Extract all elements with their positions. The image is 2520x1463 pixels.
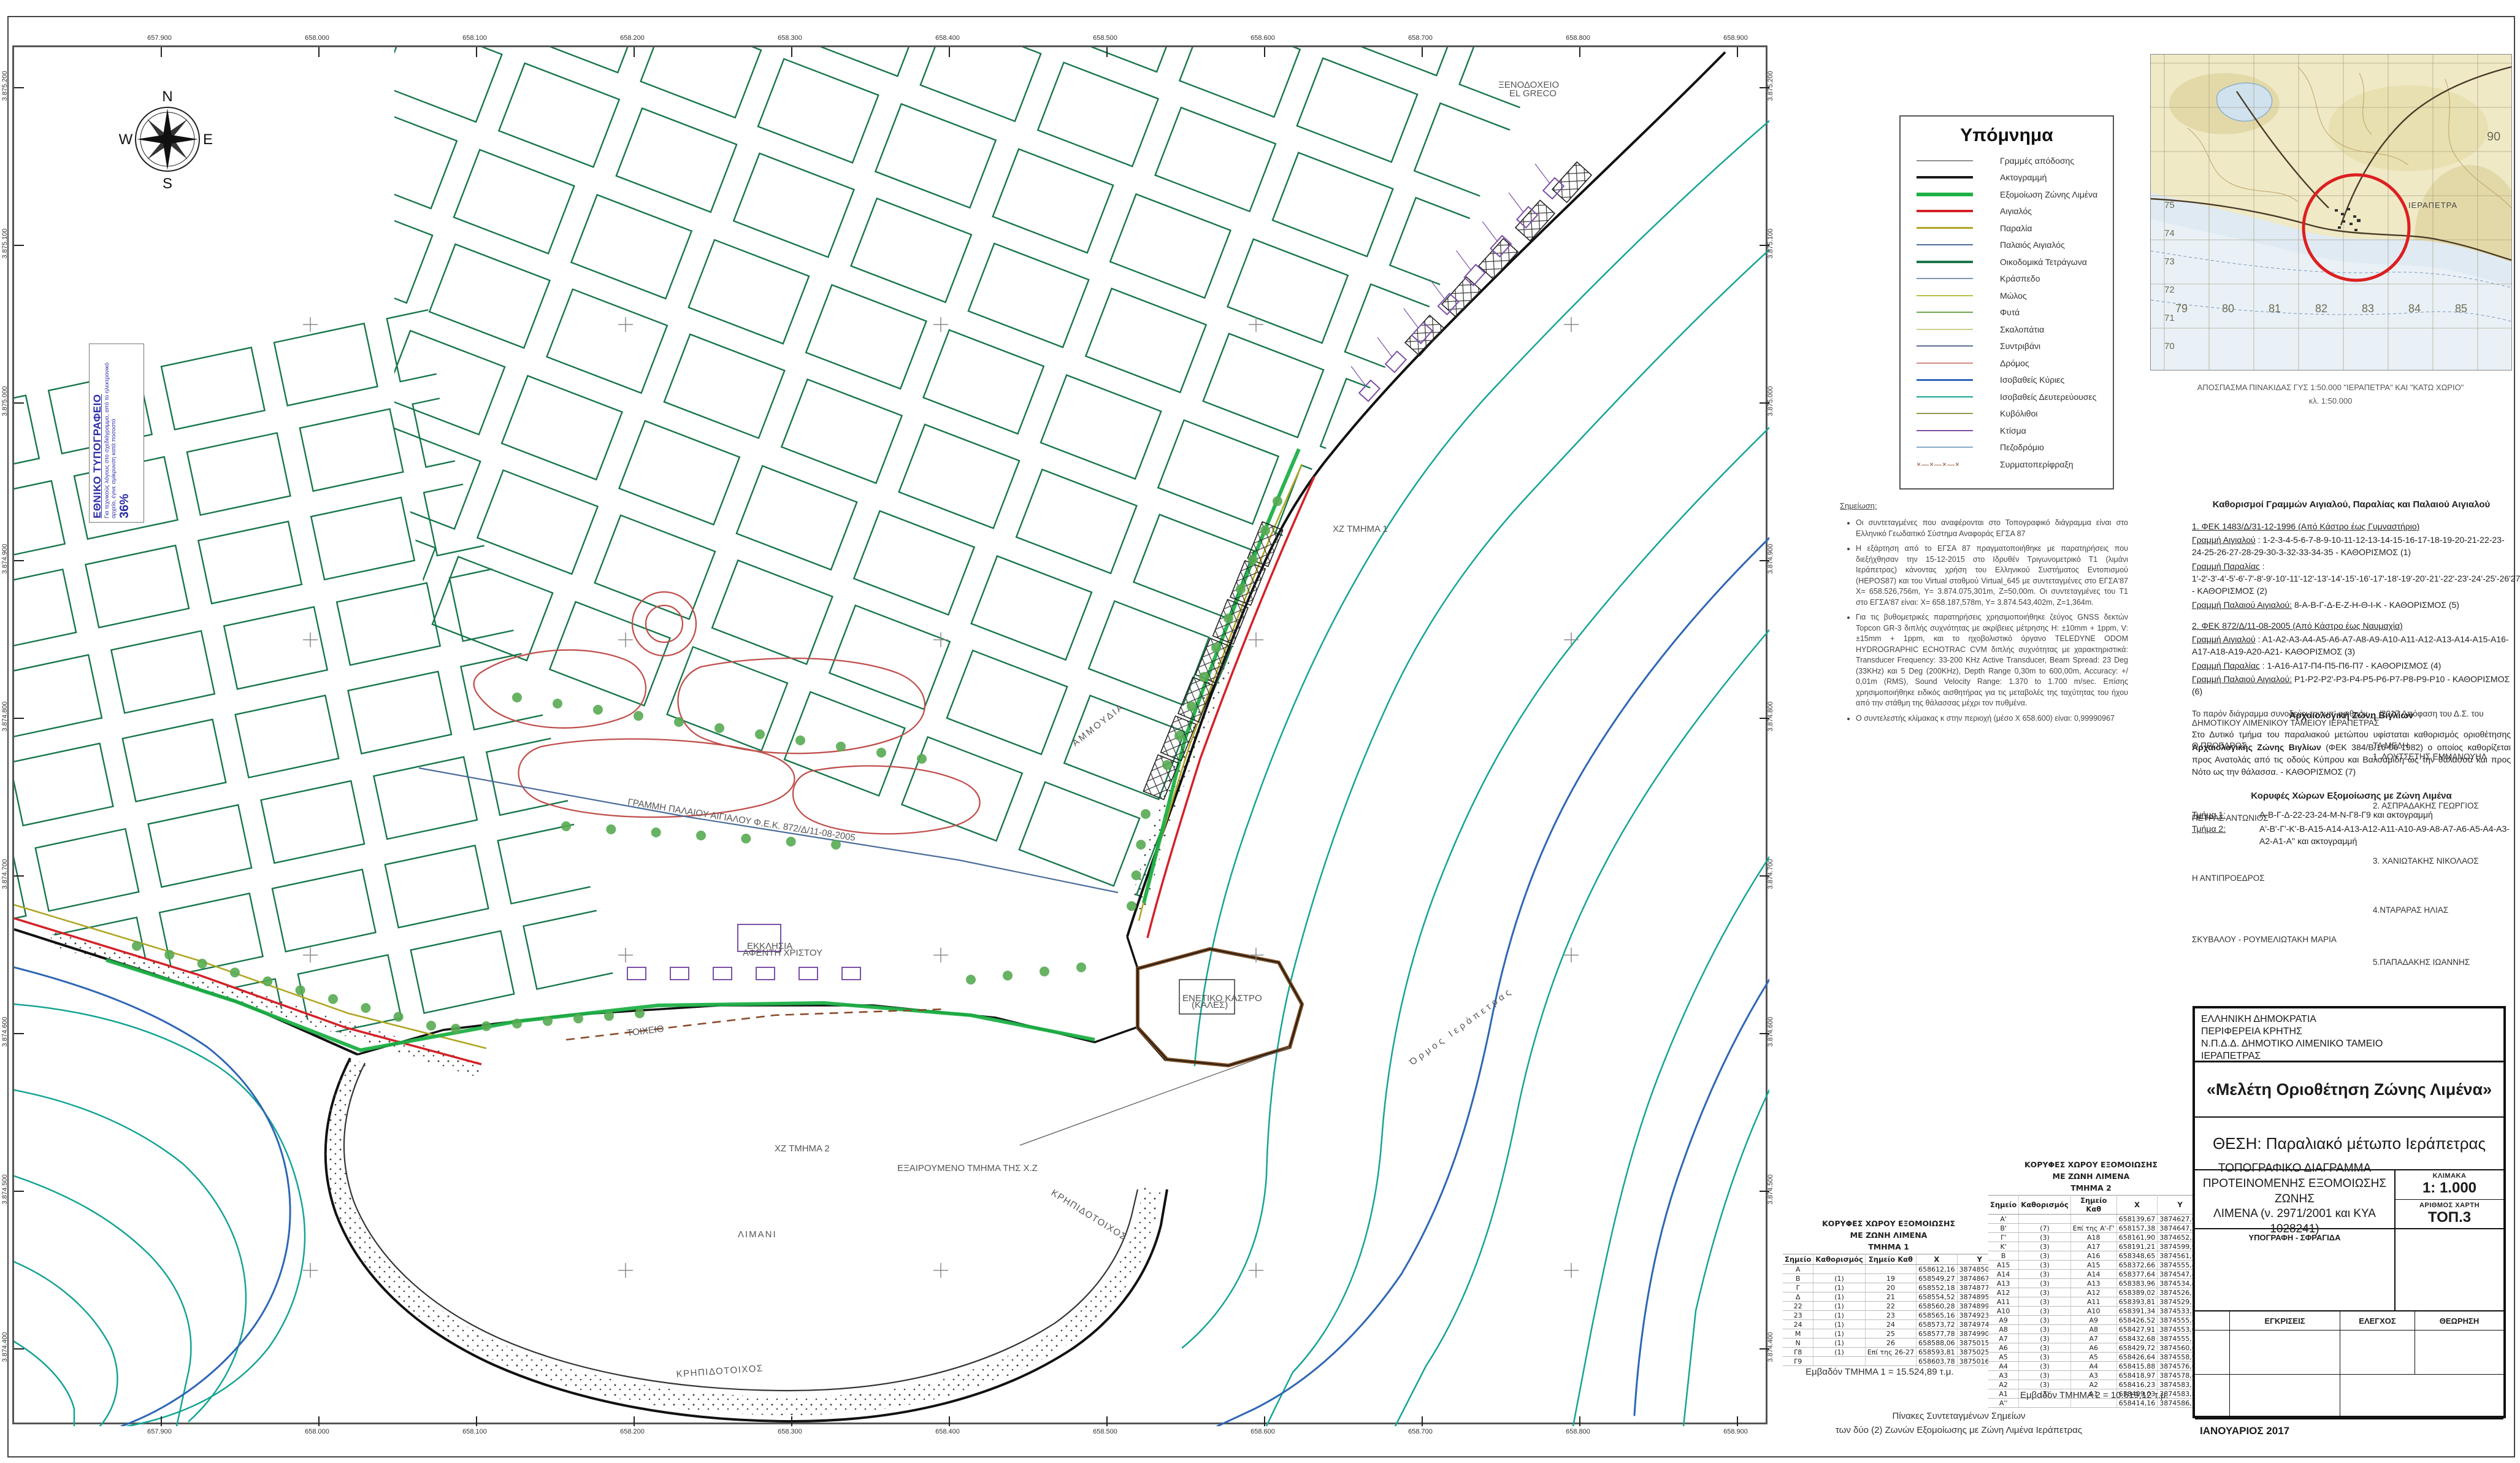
coordinate-tick-label: 3.874.900	[1, 537, 9, 580]
legend-item-label: Συρματοπερίφραξη	[2000, 459, 2074, 469]
title-block-agency: ΕΛΛΗΝΙΚΗ ΔΗΜΟΚΡΑΤΙΑ ΠΕΡΙΦΕΡΕΙΑ ΚΡΗΤΗΣ Ν.…	[2195, 1008, 2503, 1062]
line-swatch-icon	[1917, 413, 1973, 414]
label-kastro-line2: (ΚΑΛΕΣ)	[1192, 1000, 1228, 1010]
label-hotel-line2: EL GRECO	[1509, 88, 1557, 99]
legend-item-label: Κτίσμα	[2000, 426, 2026, 436]
line-swatch-icon	[1917, 363, 1973, 364]
inset-right-number: 90	[2487, 130, 2500, 144]
check-header: ΕΛΕΓΧΟΣ	[2340, 1311, 2415, 1330]
coastline	[14, 52, 1725, 1061]
title-block-map-number: ΑΡΙΘΜΟΣ ΧΑΡΤΗΤΟΠ.3	[2396, 1200, 2503, 1229]
legend-item: Πεζοδρόμιο	[1901, 439, 2113, 456]
line-swatch-icon	[1917, 396, 1973, 397]
coordinate-tick-label: 658.900	[1714, 1428, 1757, 1435]
fek-s2-line2: Γραμμή Παραλίας : 1-Α16-Α17-Π4-Π5-Π6-Π7 …	[2192, 659, 2511, 672]
title-block-drawing-title: ΤΟΠΟΓΡΑΦΙΚΟ ΔΙΑΓΡΑΜΜΑΠΡΟΤΕΙΝΟΜΕΝΗΣ ΕΞΟΜΟ…	[2195, 1170, 2396, 1228]
svg-text:N: N	[162, 88, 172, 105]
member-name: 5.ΠΑΠΑΔΑΚΗΣ ΙΩΑΝΝΗΣ	[2373, 958, 2470, 967]
table-row: 23(1)23658565,163874923,81	[1783, 1311, 2002, 1320]
coordinate-tick-label: 658.900	[1714, 34, 1757, 42]
coordinate-tick-label: 658.000	[296, 1428, 339, 1435]
legend-item: Γραμμές απόδοσης	[1901, 152, 2113, 169]
legend-title: Υπόμνημα	[1901, 125, 2113, 146]
note-bullet: Για τις βυθομετρικές παρατηρήσεις χρησιμ…	[1856, 612, 2128, 709]
svg-text:82: 82	[2315, 302, 2327, 315]
legend-item: Συντριβάνι	[1901, 338, 2113, 355]
svg-text:W: W	[119, 131, 133, 148]
legend-item-label: Κράσπεδο	[2000, 274, 2040, 283]
legend-item-label: Εξομοίωση Ζώνης Λιμένα	[2000, 190, 2097, 199]
table-row: Β(3)Α16658348,653874561,61	[1988, 1251, 2202, 1261]
svg-text:E: E	[203, 131, 213, 148]
table-row: Α10(3)Α10658391,343874533,57	[1988, 1307, 2202, 1316]
coords-table-tmima2: ΚΟΡΥΦΕΣ ΧΩΡΟΥ ΕΞΟΜΟΙΩΣΗΣΜΕ ΖΩΝΗ ΛΙΜΕΝΑΤΜ…	[1988, 1159, 2194, 1408]
legend-item: Μώλος	[1901, 287, 2113, 304]
svg-text:80: 80	[2222, 302, 2234, 315]
line-swatch-icon	[1917, 176, 1973, 179]
member-name: 4.ΝΤΑΡΑΡΑΣ ΗΛΙΑΣ	[2373, 905, 2448, 915]
table-column-header: Καθορισμός	[2019, 1196, 2070, 1215]
table-row: Α14(3)Α14658377,643874547,43	[1988, 1270, 2202, 1279]
svg-text:75: 75	[2164, 200, 2175, 210]
svg-text:81: 81	[2269, 302, 2281, 315]
fek-title: Καθορισμοί Γραμμών Αιγιαλού, Παραλίας κα…	[2192, 498, 2511, 512]
line-swatch-icon	[1917, 312, 1973, 313]
vice-president-title: Η ΑΝΤΙΠΡΟΕΔΡΟΣ	[2192, 874, 2265, 883]
coordinate-tick-label: 658.100	[453, 34, 496, 42]
table-row: Α5(3)Α5658426,643874558,90	[1988, 1353, 2202, 1362]
fence-line-icon: ×—×—×—×	[1917, 461, 1973, 467]
label-xz-tmima2: ΧΖ ΤΜΗΜΑ 2	[775, 1143, 830, 1154]
peaks-row-2: Τμήμα 2:Α'-Β'-Γ'-Κ'-Β-Α15-Α14-Α13-Α12-Α1…	[2192, 823, 2511, 848]
table-row: Α12(3)Α12658389,023874526,32	[1988, 1288, 2202, 1297]
legend-item: Παραλία	[1901, 220, 2113, 237]
svg-text:71: 71	[2164, 313, 2175, 323]
label-church-line2: ΑΦΕΝΤΗ ΧΡΙΣΤΟΥ	[743, 948, 822, 958]
table-row: Α3(3)Α3658418,973874578,44	[1988, 1371, 2202, 1380]
legend-item: Παλαιός Αιγιαλός	[1901, 237, 2113, 254]
legend-item-label: Αιγιαλός	[2000, 206, 2032, 216]
legend-item-label: Κυβόλιθοι	[2000, 409, 2037, 418]
coordinate-tick-label: 658.400	[926, 1428, 969, 1435]
stamp-title: ΕΘΝΙΚΟ ΤΥΠΟΓΡΑΦΕΙΟ	[91, 348, 104, 518]
svg-text:72: 72	[2164, 285, 2175, 295]
label-excluded-zone: ΕΞΑΙΡΟΥΜΕΝΟ ΤΜΗΜΑ ΤΗΣ Χ.Ζ	[897, 1163, 1038, 1173]
legend-box: Υπόμνημα Γραμμές απόδοσηςΑκτογραμμήΕξομο…	[1899, 115, 2114, 490]
coordinate-tick-label: 658.200	[611, 34, 654, 42]
table-row: Γ'(3)Α18658161,903874652,36	[1988, 1233, 2202, 1242]
table-row: Β(1)19658549,273874867,70	[1783, 1274, 2002, 1283]
legend-item-label: Ισοβαθείς Κύριες	[2000, 375, 2064, 385]
svg-text:84: 84	[2408, 302, 2421, 315]
svg-text:74: 74	[2164, 228, 2175, 239]
table-row: Α13(3)Α13658383,963874534,49	[1988, 1279, 2202, 1288]
label-kripidotoixos-2: ΚΡΗΠΙΔΟΤΟΙΧΟΣ	[1049, 1188, 1129, 1243]
coordinate-tick-label: 3.874.700	[1767, 853, 1774, 896]
title-block-signature-area: ΥΠΟΓΡΑΦΗ - ΣΦΡΑΓΙΔΑ	[2195, 1229, 2396, 1310]
legend-item: Σκαλοπάτια	[1901, 321, 2113, 338]
svg-text:S: S	[163, 175, 172, 192]
coordinate-tick-label: 658.300	[768, 34, 811, 42]
old-aigialos-line	[419, 768, 1118, 893]
president-name: ΠΕΤΡΑΣ ΑΝΤΩΝΙΟΣ	[2192, 813, 2269, 823]
member-name: 3. ΧΑΝΙΩΤΑΚΗΣ ΝΙΚΟΛΑΟΣ	[2373, 856, 2479, 866]
svg-text:73: 73	[2164, 256, 2175, 267]
members-title: ΤΑ ΜΕΛΗ	[2373, 741, 2408, 750]
legend-item: Ισοβαθείς Κύριες	[1901, 372, 2113, 389]
fek-block: Καθορισμοί Γραμμών Αιγιαλού, Παραλίας κα…	[2192, 497, 2511, 848]
signatures-intro: Το παρόν διάγραμμα συνοδεύει την υπ' αρι…	[2192, 709, 2511, 728]
table-row: Α8(3)Α8658427,913874553,08	[1988, 1325, 2202, 1334]
label-xz-tmima1: ΧΖ ΤΜΗΜΑ 1	[1333, 524, 1388, 534]
legend-item-label: Μώλος	[2000, 291, 2027, 301]
legend-item-label: Οικοδομικά Τετράγωνα	[2000, 257, 2087, 267]
note-bullet: Ο συντελεστής κλίμακας κ στην περιοχή (μ…	[1856, 713, 2128, 724]
label-kripidotoixos-1: ΚΡΗΠΙΔΟΤΟΙΧΟΣ	[676, 1363, 764, 1380]
review-header: ΘΕΩΡΗΣΗ	[2415, 1311, 2503, 1330]
member-name: 1. ΛΟΥΤΣΕΤΗΣ ΕΜΜΑΝΟΥΗΛ	[2373, 752, 2487, 761]
table-column-header: Σημείο	[1783, 1254, 1813, 1265]
stamp-body: Για τεχνικούς λόγους στο σχεδιάγραμμα, α…	[104, 348, 118, 518]
coordinate-tick-label: 3.874.400	[1767, 1326, 1774, 1369]
inset-caption-line2: κλ. 1:50.000	[2150, 396, 2511, 405]
coordinate-tick-label: 658.400	[926, 34, 969, 42]
coordinate-tick-label: 3.875.000	[1767, 380, 1774, 423]
stamp-percent: 36%	[118, 348, 132, 518]
legend-item-label: Συντριβάνι	[2000, 341, 2040, 351]
title-block-signature-right	[2396, 1229, 2503, 1310]
coordinate-tick-label: 3.874.500	[1767, 1168, 1774, 1211]
coordinate-tick-label: 658.000	[296, 34, 339, 42]
line-swatch-icon	[1917, 345, 1973, 347]
table-row: Ν(1)26658588,063875015,24	[1783, 1338, 2002, 1348]
legend-item: Ισοβαθείς Δευτερεύουσες	[1901, 388, 2113, 405]
svg-text:83: 83	[2362, 302, 2374, 315]
table-row: Γ9658603,783875016,38	[1783, 1357, 2002, 1366]
fek-s1-line2: Γραμμή Παραλίας : 1'-2'-3'-4'-5'-6'-7'-8…	[2192, 560, 2511, 597]
line-swatch-icon	[1917, 193, 1973, 196]
signatures-block: Το παρόν διάγραμμα συνοδεύει την υπ' αρι…	[2192, 709, 2511, 728]
table-row: Μ(1)25658577,783874990,64	[1783, 1329, 2002, 1338]
legend-item: Κτίσμα	[1901, 422, 2113, 439]
coordinate-tick-label: 658.500	[1084, 1428, 1127, 1435]
legend-item: Αιγιαλός	[1901, 203, 2113, 220]
inset-caption-line1: ΑΠΟΣΠΑΣΜΑ ΠΙΝΑΚΙΔΑΣ ΓΥΣ 1:50.000 "ΙΕΡΑΠΕ…	[2150, 383, 2511, 392]
isobath-secondary-lines	[14, 121, 1769, 1426]
coords-table-tmima1: ΚΟΡΥΦΕΣ ΧΩΡΟΥ ΕΞΟΜΟΙΩΣΗΣΜΕ ΖΩΝΗ ΛΙΜΕΝΑΤΜ…	[1783, 1218, 1994, 1366]
coordinate-tick-label: 658.800	[1557, 34, 1599, 42]
tables-caption: Πίνακες Συντεταγμένων Σημείωντων δύο (2)…	[1787, 1410, 2131, 1437]
legend-item: Εξομοίωση Ζώνης Λιμένα	[1901, 186, 2113, 203]
table-row: Α9(3)Α9658426,523874555,42	[1988, 1316, 2202, 1325]
coordinate-tick-label: 3.875.100	[1767, 222, 1774, 265]
line-swatch-icon	[1917, 210, 1973, 212]
svg-text:70: 70	[2164, 341, 2175, 351]
table-row: Α7(3)Α7658432,683874555,75	[1988, 1334, 2202, 1343]
line-swatch-icon	[1917, 295, 1973, 296]
svg-text:85: 85	[2455, 302, 2467, 315]
coordinate-tick-label: 3.874.600	[1, 1010, 9, 1053]
wire-fence-line	[566, 1009, 946, 1040]
coordinate-tick-label: 658.600	[1241, 1428, 1284, 1435]
table-row: Α2(3)Α2658416,233874583,12	[1988, 1380, 2202, 1389]
legend-item: Ακτογραμμή	[1901, 169, 2113, 186]
coordinate-tick-label: 658.300	[768, 1428, 811, 1435]
table-row: Δ(1)21658554,523874895,15	[1783, 1292, 2002, 1302]
title-block-project: «Μελέτη Οριοθέτηση Ζώνης Λιμένα»	[2195, 1062, 2503, 1118]
fek-s2-line3: Γραμμή Παλαιού Αιγιαλού: Ρ1-Ρ2-Ρ2'-Ρ3-Ρ4…	[2192, 673, 2511, 698]
fek-s2-line1: Γραμμή Αιγιαλού : Α1-Α2-Α3-Α4-Α5-Α6-Α7-Α…	[2192, 633, 2511, 658]
fek-s1-line1: Γραμμή Αιγιαλού : 1-2-3-4-5-6-7-8-9-10-1…	[2192, 534, 2511, 559]
coordinate-tick-label: 658.600	[1241, 34, 1284, 42]
table-row: Α'658139,673874627,00	[1988, 1215, 2202, 1224]
president-title: Ο ΠΡΟΕΔΡΟΣ	[2192, 741, 2246, 750]
coordinate-tick-label: 658.500	[1084, 34, 1127, 42]
coordinate-tick-label: 657.900	[138, 1428, 181, 1435]
coordinate-tick-label: 658.100	[453, 1428, 496, 1435]
line-swatch-icon	[1917, 261, 1973, 263]
legend-item-label: Παραλία	[2000, 223, 2032, 233]
line-swatch-icon	[1917, 329, 1973, 330]
table-column-header: Σημείο	[1988, 1196, 2019, 1215]
line-swatch-icon	[1917, 447, 1973, 448]
table-column-header: X	[2116, 1196, 2158, 1215]
line-swatch-icon	[1917, 244, 1973, 245]
label-limani: ΛΙΜΑΝΙ	[738, 1229, 777, 1240]
label-old-aigialos-fek: ΓΡΑΜΜΗ ΠΑΛΑΙΟΥ ΑΙΓΙΑΛΟΥ Φ.Ε.Κ. 872/Δ/11-…	[627, 797, 856, 843]
member-name: 2. ΑΣΠΡΑΔΑΚΗΣ ΓΕΩΡΓΙΟΣ	[2373, 801, 2479, 810]
coordinate-tick-label: 3.875.000	[1, 380, 9, 423]
note-bullet: Οι συντεταγμένες που αναφέρονται στο Τοπ…	[1856, 518, 2128, 539]
reduction-stamp: ΕΘΝΙΚΟ ΤΥΠΟΓΡΑΦΕΙΟ Για τεχνικούς λόγους …	[87, 341, 146, 525]
label-ormos: Όρμος Ιεράπετρας	[1407, 986, 1515, 1068]
coordinate-tick-label: 3.875.200	[1767, 64, 1774, 107]
legend-items: Γραμμές απόδοσηςΑκτογραμμήΕξομοίωση Ζώνη…	[1901, 152, 2113, 473]
table-row: 22(1)22658560,283874899,80	[1783, 1302, 2002, 1311]
inset-town-label: ΙΕΡΑΠΕΤΡΑ	[2408, 201, 2457, 210]
table-row: Γ(1)20658552,183874877,86	[1783, 1283, 2002, 1292]
title-block-date: ΙΑΝΟΥΑΡΙΟΣ 2017	[2195, 1419, 2503, 1443]
svg-text:79: 79	[2175, 302, 2188, 315]
coordinate-tick-label: 3.874.500	[1, 1168, 9, 1211]
coordinate-tick-label: 657.900	[138, 34, 181, 42]
legend-item-label: Ακτογραμμή	[2000, 172, 2047, 182]
tree-dots	[132, 496, 1282, 1034]
drawing-sheet: N E S W ΛΙΜΑΝΙ ΑΜΜΟΥΔΙΑ ΧΖ ΤΜΗΜΑ 1 ΧΖ ΤΜ…	[7, 16, 2515, 1457]
legend-item-label: Ισοβαθείς Δευτερεύουσες	[2000, 392, 2096, 402]
legend-item: Οικοδομικά Τετράγωνα	[1901, 253, 2113, 271]
legend-item-label: Σκαλοπάτια	[2000, 324, 2044, 334]
table-column-header: X	[1917, 1254, 1958, 1265]
legend-item-label: Παλαιός Αιγιαλός	[2000, 240, 2065, 250]
compass-rose-icon: N E S W	[119, 88, 213, 192]
coordinate-tick-label: 3.875.200	[1, 64, 9, 107]
fek-s1-line3: Γραμμή Παλαιού Αιγιαλού: 8-Α-Β-Γ-Δ-Ε-Ζ-Η…	[2192, 599, 2511, 611]
paralia-line-west	[14, 905, 486, 1048]
coordinate-tick-label: 658.200	[611, 1428, 654, 1435]
main-map: N E S W ΛΙΜΑΝΙ ΑΜΜΟΥΔΙΑ ΧΖ ΤΜΗΜΑ 1 ΧΖ ΤΜ…	[14, 47, 1769, 1426]
coordinate-tick-label: 3.874.400	[1, 1326, 9, 1369]
coordinate-tick-label: 3.874.800	[1767, 695, 1774, 738]
legend-item: Κυβόλιθοι	[1901, 405, 2113, 423]
main-map-frame: N E S W ΛΙΜΑΝΙ ΑΜΜΟΥΔΙΑ ΧΖ ΤΜΗΜΑ 1 ΧΖ ΤΜ…	[12, 45, 1767, 1424]
vice-president-name: ΣΚΥΒΑΛΟΥ - ΡΟΥΜΕΛΙΩΤΑΚΗ ΜΑΡΙΑ	[2192, 935, 2337, 944]
street-grid-northeast	[14, 47, 1732, 980]
notes-list: Οι συντεταγμένες που αναφέρονται στο Τοπ…	[1840, 518, 2128, 724]
inset-map: ΙΕΡΑΠΕΤΡΑ 79808182838485757473727170 90	[2150, 54, 2512, 371]
label-toixeio: ΤΟΙΧΕΙΟ	[626, 1024, 664, 1039]
fek-section1-heading: 1. ΦΕΚ 1483/Δ/31-12-1996 (Από Κάστρο έως…	[2192, 520, 2511, 532]
notes-heading: Σημείωση:	[1840, 501, 2128, 512]
coordinate-tick-label: 658.800	[1557, 1428, 1599, 1435]
coordinate-tick-label: 3.875.100	[1, 222, 9, 265]
line-swatch-icon	[1917, 430, 1973, 431]
aigialos-line-east	[1147, 477, 1314, 938]
legend-item-label: Πεζοδρόμιο	[2000, 442, 2044, 452]
grid-crosses	[303, 317, 1579, 1278]
legend-item-label: Γραμμές απόδοσης	[2000, 156, 2074, 166]
legend-item: Φυτά	[1901, 304, 2113, 321]
legend-item: Δρόμος	[1901, 355, 2113, 372]
coordinate-tick-label: 658.700	[1399, 34, 1442, 42]
area-tmima2: Εμβαδόν ΤΜΗΜΑ 2 = 10.619,12 τ.μ.	[2020, 1390, 2169, 1400]
note-bullet: Η εξάρτηση από το ΕΓΣΑ 87 πραγματοποιήθη…	[1856, 543, 2128, 608]
coordinate-tick-label: 658.700	[1399, 1428, 1442, 1435]
line-swatch-icon	[1917, 227, 1973, 229]
area-tmima1: Εμβαδόν ΤΜΗΜΑ 1 = 15.524,89 τ.μ.	[1806, 1367, 1954, 1377]
table-row: Β'(7)Επί της Α'-Γ'658157,383874647,21	[1988, 1224, 2202, 1233]
table-column-header: Σημείο Καθ	[2070, 1196, 2116, 1215]
line-swatch-icon	[1917, 278, 1973, 279]
notes-block: Σημείωση: Οι συντεταγμένες που αναφέροντ…	[1840, 501, 2128, 728]
coordinate-tick-label: 3.874.800	[1, 695, 9, 738]
table-row: Α11(3)Α11658393,813874529,14	[1988, 1297, 2202, 1307]
table-column-header: Καθορισμός	[1813, 1254, 1865, 1265]
title-block-scale: ΚΛΙΜΑΚΑ1: 1.000	[2396, 1170, 2503, 1200]
table-row: Α15(3)Α15658372,663874555,41	[1988, 1261, 2202, 1270]
coordinate-tick-label: 3.874.600	[1767, 1010, 1774, 1053]
legend-item-label: Φυτά	[2000, 307, 2020, 317]
legend-item-label: Δρόμος	[2000, 358, 2029, 368]
kales-fortress	[1020, 949, 1302, 1145]
table-row: Κ'(3)Α17658191,213874599,98	[1988, 1242, 2202, 1251]
table-row: Α658612,163874850,98	[1783, 1265, 2002, 1274]
legend-item: ×—×—×—×Συρματοπερίφραξη	[1901, 456, 2113, 473]
approvals-header: ΕΓΚΡΙΣΕΙΣ	[2230, 1311, 2340, 1330]
table-column-header: Σημείο Καθ	[1865, 1254, 1916, 1265]
line-swatch-icon	[1917, 160, 1973, 161]
legend-item: Κράσπεδο	[1901, 271, 2113, 288]
coordinate-tick-label: 3.874.700	[1, 853, 9, 896]
beach-stipple-west	[51, 938, 480, 1070]
coordinate-tick-label: 3.874.900	[1767, 537, 1774, 580]
table-row: Α4(3)Α4658415,883874576,69	[1988, 1362, 2202, 1371]
fek-section2-heading: 2. ΦΕΚ 872/Δ/11-08-2005 (Από Κάστρο έως …	[2192, 620, 2511, 632]
title-block: ΕΛΛΗΝΙΚΗ ΔΗΜΟΚΡΑΤΙΑ ΠΕΡΙΦΕΡΕΙΑ ΚΡΗΤΗΣ Ν.…	[2193, 1006, 2506, 1418]
line-swatch-icon	[1917, 379, 1973, 381]
table-row: Γ8(1)Επί της 26-27658593,813875025,29	[1783, 1348, 2002, 1357]
table-row: 24(1)24658573,723874974,08	[1783, 1320, 2002, 1329]
table-row: Α6(3)Α6658429,723874560,68	[1988, 1343, 2202, 1353]
